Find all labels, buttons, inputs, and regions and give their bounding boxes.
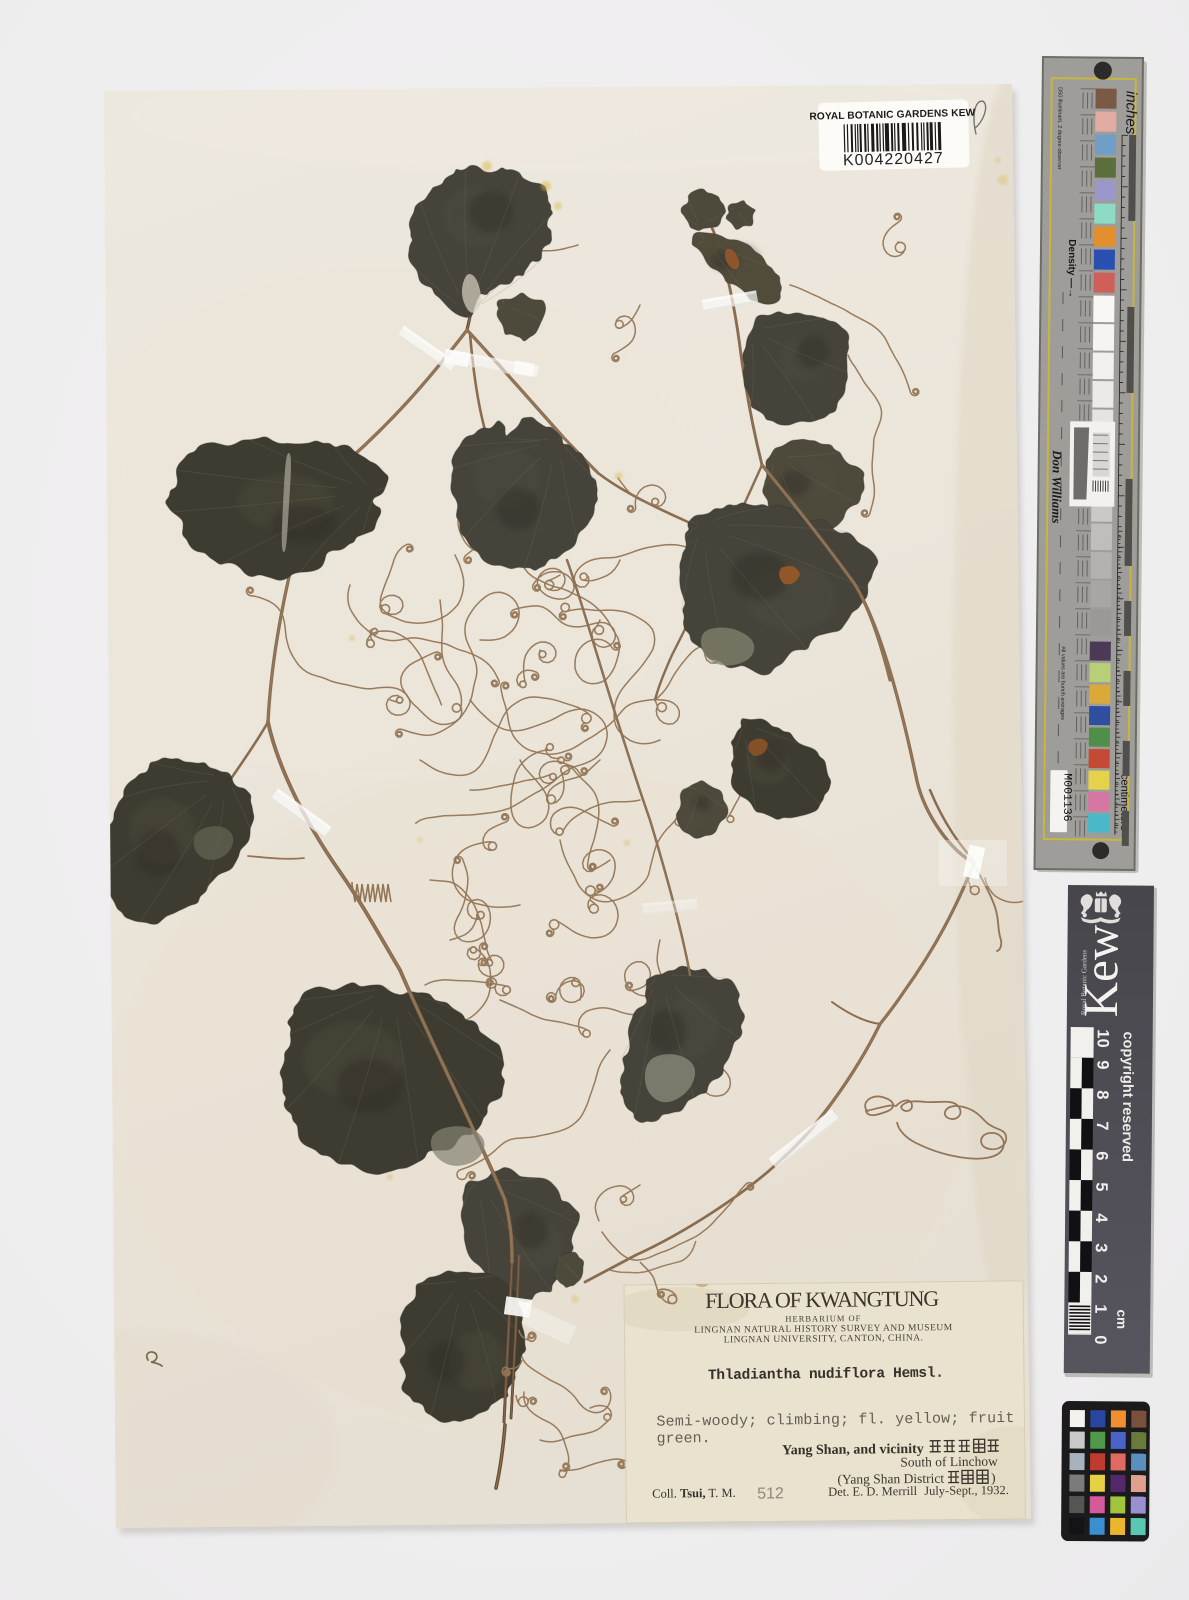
svg-text:Coll. Tsui, T. M.: Coll. Tsui, T. M. <box>652 1486 736 1501</box>
svg-text:cm: cm <box>1114 1309 1129 1329</box>
svg-text:9: 9 <box>1093 1060 1111 1069</box>
svg-text:Don Williams: Don Williams <box>1049 449 1065 523</box>
svg-text:Det. E. D. Merrill: Det. E. D. Merrill <box>828 1484 918 1499</box>
svg-text:D50 illuminant, 2 degree obser: D50 illuminant, 2 degree observer <box>1056 87 1063 170</box>
svg-text:LINGNAN UNIVERSITY, CANTON, CH: LINGNAN UNIVERSITY, CANTON, CHINA. <box>724 1333 924 1345</box>
svg-text:2: 2 <box>1092 1274 1110 1283</box>
svg-text:Thladiantha nudiflora Hemsl.: Thladiantha nudiflora Hemsl. <box>708 1366 944 1384</box>
svg-text:South of Linchow: South of Linchow <box>900 1454 998 1470</box>
svg-text:0: 0 <box>1091 1335 1109 1344</box>
svg-text:512: 512 <box>757 1485 784 1502</box>
svg-text:M001136: M001136 <box>1060 773 1074 822</box>
svg-text:4: 4 <box>1092 1213 1110 1223</box>
svg-text:copyright reserved: copyright reserved <box>1119 1031 1136 1162</box>
svg-text:7: 7 <box>1093 1121 1111 1130</box>
svg-text:HERBARIUM OF: HERBARIUM OF <box>785 1313 861 1324</box>
svg-text:8: 8 <box>1093 1090 1111 1099</box>
svg-text:All values are bunch averages: All values are bunch averages <box>1059 646 1066 720</box>
svg-text:Density —→: Density —→ <box>1065 239 1077 298</box>
svg-text:July-Sept., 1932.: July-Sept., 1932. <box>924 1483 1009 1498</box>
svg-text:FLORA OF KWANGTUNG: FLORA OF KWANGTUNG <box>705 1286 941 1313</box>
svg-text:inches: inches <box>1122 91 1139 135</box>
svg-text:green.: green. <box>657 1430 711 1448</box>
svg-text:3: 3 <box>1092 1243 1110 1252</box>
svg-text:6: 6 <box>1093 1151 1111 1160</box>
svg-text:Royal Botanic Gardens: Royal Botanic Gardens <box>1080 950 1089 1016</box>
svg-text:10: 10 <box>1094 1029 1112 1048</box>
svg-text:1: 1 <box>1091 1304 1109 1313</box>
svg-text:K004220427: K004220427 <box>843 150 944 169</box>
svg-text:5: 5 <box>1092 1182 1110 1191</box>
